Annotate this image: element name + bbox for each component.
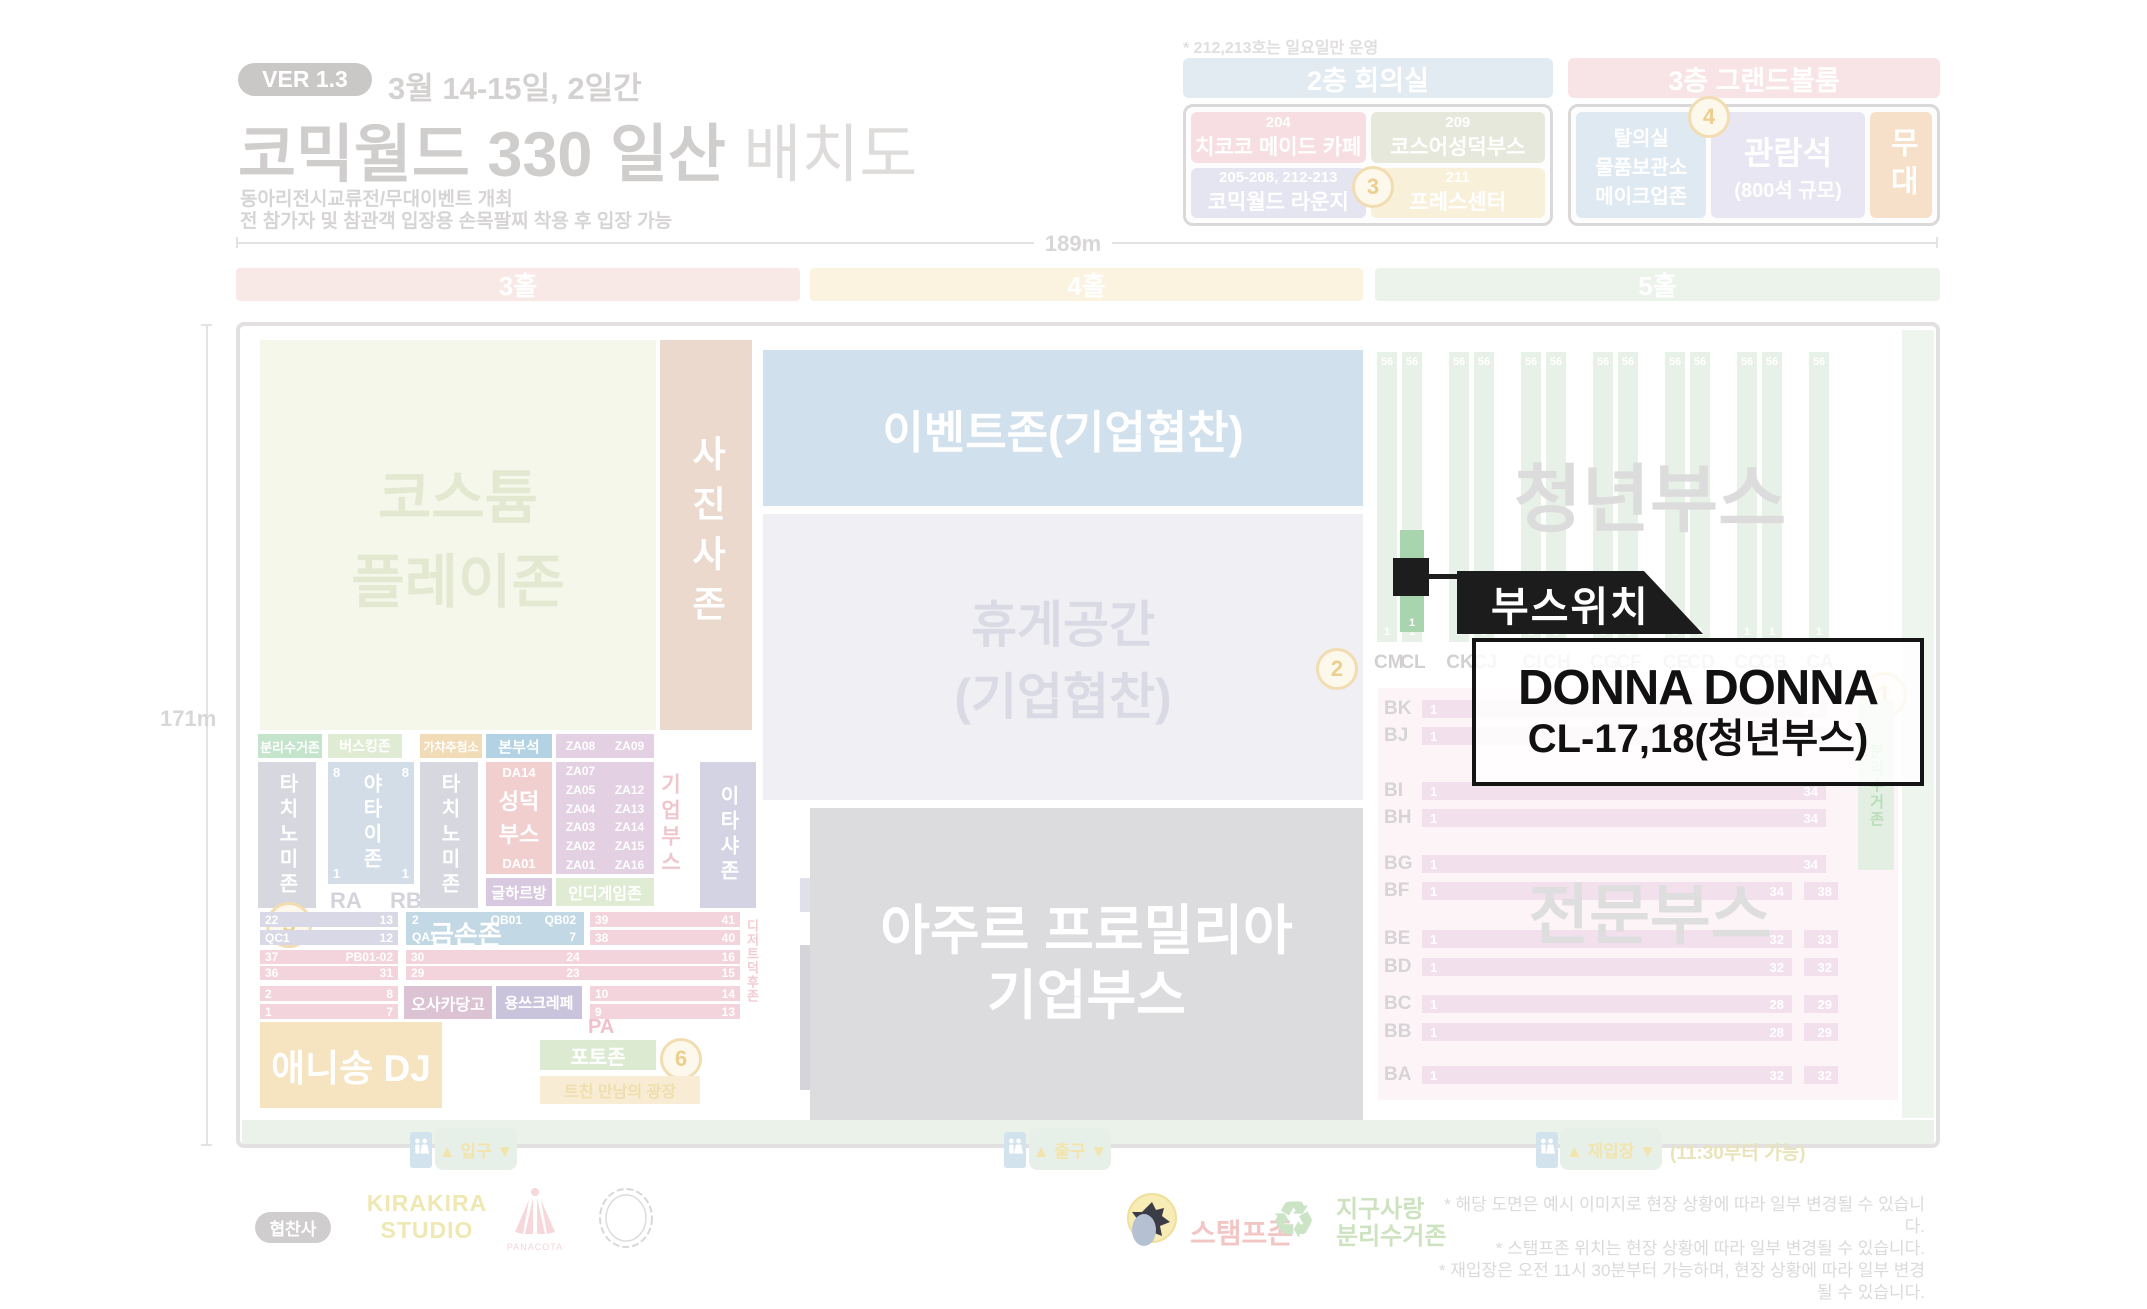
circled-number-6: 6 [660,1038,702,1080]
booth-row-bc: BC 128 29 [1384,995,1838,1013]
hq-box: 본부석 [486,734,552,758]
dim-tick-right [1936,237,1938,248]
booth-bar: 37PB01-02 [260,950,398,964]
booth-row-bh: BH 134 [1384,809,1826,827]
version-badge: VER 1.3 [238,63,372,96]
pro-booth-title: 전문부스 [1440,862,1860,958]
column-label: CL [1399,652,1427,674]
event-zone: 이벤트존(기업협찬) [763,350,1363,506]
page-title: 코믹월드 330 일산 배치도 [238,104,917,195]
stamp-mascot-icon [1118,1190,1182,1254]
hall3-bar: 3홀 [236,268,800,301]
itasha-zone: 이타샤존 [700,762,756,908]
costume-play-zone: 코스튬 플레이존 [260,340,656,730]
event-dates: 3월 14-15일, 2일간 [388,63,642,108]
ra-label: RA [330,888,362,914]
column-label: CM [1374,652,1402,674]
entrance-box: ▲ 입구 ▼ [435,1128,517,1170]
room-209: 209 코스어성덕부스 [1371,112,1546,163]
corp-booth-vertical-label: 기업부스 [655,768,683,882]
tachinomi-zone-2: 타치노미존 [420,762,478,908]
booth-row-bb: BB 128 29 [1384,1023,1838,1041]
booth-name: DONNA DONNA [1518,662,1878,716]
booth-bar: 28 [260,986,398,1001]
golharbang-box: 글하르방 [486,878,552,906]
recycle-icon: ♻ [1272,1192,1315,1248]
booth-bar: 2213 [260,912,398,927]
booth-row-ba: BA 132 32 [1384,1066,1838,1084]
anisong-dj-zone: 애니송 DJ [260,1022,442,1108]
crepe-box: 용쓰크레페 [496,986,582,1019]
floor2-header: 2층 회의실 [1183,58,1553,98]
height-dimension-line [206,324,208,1146]
rb-label: RB [390,888,422,914]
recycle-zone-box: 분리수거존 [258,734,322,758]
dessert-zone-vertical-label: 디저트덕후존 [742,908,762,1014]
booth-bar: 3631 [260,966,398,980]
booth-bar: 3941 [590,912,740,927]
booth-bar: 3840 [590,930,740,945]
dim-tick-bottom [201,1144,212,1146]
photo-spot-box: 포토존 [540,1040,656,1070]
booth-bar: 1014 [590,986,740,1001]
floor3-room-grid: 탈의실 물품보관소 메이크업존 관람석 (800석 규모) 무대 [1568,104,1940,226]
rest-zone: 휴게공간 (기업협찬) [763,514,1363,800]
kirakira-studio-logo: KIRAKIRA STUDIO [360,1190,494,1244]
panacota-logo: PANACOTA [505,1186,565,1252]
room-211: 211 프레스센터 [1371,168,1546,219]
indie-game-zone: 인디게임존 [556,878,654,906]
restroom-icon [1004,1132,1026,1168]
column-label: CK [1446,652,1474,674]
youth-column: 561 [1377,352,1397,642]
stage-cell: 무대 [1870,112,1932,218]
monogram-logo-icon [596,1186,656,1250]
dim-tick-top [201,324,212,326]
busking-zone-box: 버스킹존 [328,734,402,758]
sponsor-label-pill: 협찬사 [255,1212,331,1243]
azure-corp-zone: 아주르 프로밀리아 기업부스 [810,808,1363,1120]
width-dimension-line-left [236,242,1034,244]
hall5-bar: 5홀 [1375,268,1940,301]
reentry-box: ▲ 재입장 ▼ [1560,1128,1662,1170]
goldhand-zone: 2 QB01 QB02 QA1 7 금손존 [406,912,584,945]
dim-tick-left [236,237,238,248]
photo-zone-strip: 사진사존 [660,340,752,730]
booth-bar: QC112 [260,930,398,945]
restroom-icon [410,1132,432,1168]
reentry-note: (11:30부터 가능) [1670,1138,1805,1165]
booth-bar: 302416 [406,950,740,964]
width-dimension-line-right [1112,242,1938,244]
room-204: 204 치코코 메이드 카페 [1191,112,1366,163]
room-lounge: 205-208, 212-213 코믹월드 라운지 [1191,168,1366,219]
circled-number-3: 3 [1352,166,1394,208]
footnote-line: * 재입장은 오전 11시 30분부터 가능하며, 현장 상황에 따라 일부 변… [1430,1260,1925,1304]
restroom-icon [1536,1132,1558,1168]
tchin-meeting-square: 트친 만남의 광장 [540,1076,700,1104]
youth-booth-title: 청년부스 [1440,440,1860,547]
width-dimension-label: 189m [1034,231,1112,257]
circled-number-2: 2 [1316,648,1358,690]
yatai-zone: 8 8 1 1 야타이존 [328,762,414,884]
seongdeok-booth: DA14 성덕 부스 DA01 [486,762,552,874]
gacha-zone-box: 가챠추첨소 [420,734,482,758]
booth-info-box: DONNA DONNA CL-17,18(청년부스) [1472,638,1924,786]
dressing-room-cell: 탈의실 물품보관소 메이크업존 [1576,112,1706,218]
za-top-row: ZA08ZA09 [556,734,654,758]
za-grid: ZA07 ZA05ZA12 ZA04ZA13 ZA03ZA14 ZA02ZA15… [556,762,654,874]
floor2-note: * 212,213호는 일요일만 운영 [1183,34,1378,58]
footnote-line: * 스탬프존 위치는 현장 상황에 따라 일부 변경될 수 있습니다. [1430,1238,1925,1260]
footnote-line: * 해당 도면은 예시 이미지로 현장 상황에 따라 일부 변경될 수 있습니다… [1430,1194,1925,1238]
hall4-bar: 4홀 [810,268,1363,301]
audience-seats-cell: 관람석 (800석 규모) [1711,112,1864,218]
exit-box: ▲ 출구 ▼ [1029,1128,1111,1170]
booth-row-bd: BD 132 32 [1384,958,1838,976]
booth-pointer-line [1428,574,1460,579]
booth-marker [1393,558,1429,596]
floor3-header: 3층 그랜드볼룸 [1568,58,1940,98]
height-dimension-label: 171m [160,706,216,732]
footnotes: * 해당 도면은 예시 이미지로 현장 상황에 따라 일부 변경될 수 있습니다… [1430,1194,1925,1304]
subtitle-line2: 전 참가자 및 참관객 입장용 손목팔찌 착용 후 입장 가능 [240,206,672,233]
pa-label: PA [588,1016,614,1039]
tachinomi-zone-1: 타치노미존 [258,762,316,908]
booth-bar: 17 [260,1004,398,1019]
floor2-room-grid: 204 치코코 메이드 카페 209 코스어성덕부스 205-208, 212-… [1183,104,1553,226]
booth-bar: 292315 [406,966,740,980]
title-main: 코믹월드 330 일산 [238,120,726,190]
osaka-dango-box: 오사카당고 [404,986,492,1019]
title-suffix: 배치도 [743,120,917,190]
circled-number-4: 4 [1688,96,1730,138]
booth-code: CL-17,18(청년부스) [1528,716,1869,762]
comic-world-floor-map: VER 1.3 3월 14-15일, 2일간 코믹월드 330 일산 배치도 동… [0,0,2147,1309]
